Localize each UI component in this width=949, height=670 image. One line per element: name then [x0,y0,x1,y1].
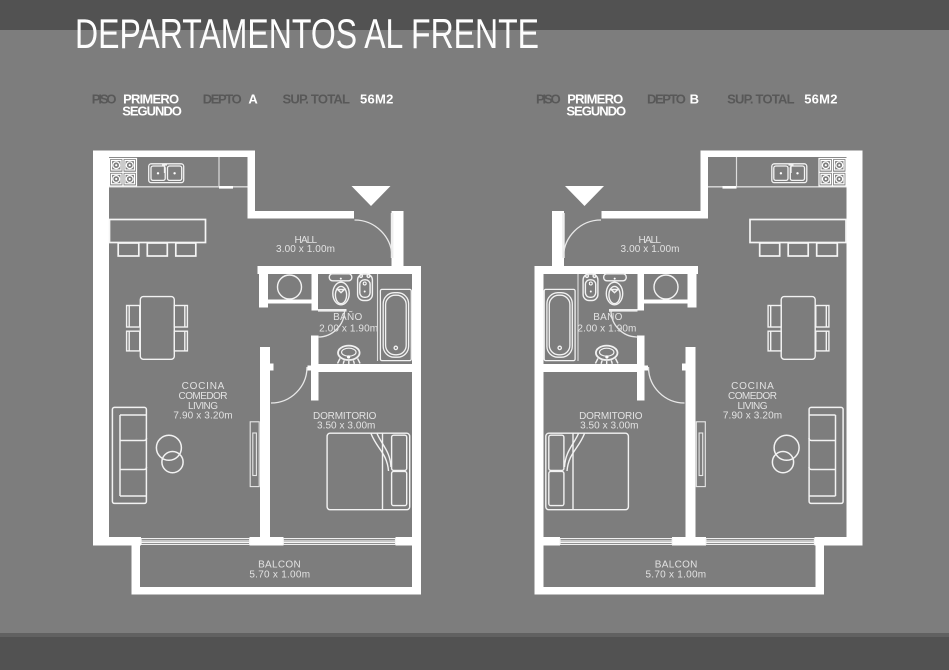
svg-text:56M2: 56M2 [804,92,837,107]
svg-text:DEPTO: DEPTO [203,92,242,107]
svg-text:BAÑO: BAÑO [593,310,622,323]
svg-text:2.00 x 1.90m: 2.00 x 1.90m [577,324,636,335]
svg-text:5.70 x 1.00m: 5.70 x 1.00m [249,569,310,580]
svg-text:PISO: PISO [92,92,117,107]
svg-text:DEPARTAMENTOS AL FRENTE: DEPARTAMENTOS AL FRENTE [75,10,539,57]
svg-text:7.90 x 3.20m: 7.90 x 3.20m [723,411,782,422]
svg-text:3.00 x 1.00m: 3.00 x 1.00m [276,244,335,255]
svg-text:7.90 x 3.20m: 7.90 x 3.20m [173,411,232,422]
svg-text:3.00 x 1.00m: 3.00 x 1.00m [621,244,680,255]
svg-text:56M2: 56M2 [360,92,393,107]
svg-text:5.70 x 1.00m: 5.70 x 1.00m [645,569,706,580]
svg-text:3.50 x 3.00m: 3.50 x 3.00m [317,421,375,432]
svg-text:PISO: PISO [536,92,561,107]
svg-text:DEPTO: DEPTO [647,92,686,107]
svg-text:SUP. TOTAL: SUP. TOTAL [727,92,795,107]
svg-text:SUP. TOTAL: SUP. TOTAL [283,92,351,107]
svg-text:A: A [248,92,258,107]
svg-text:B: B [690,92,699,107]
svg-text:SEGUNDO: SEGUNDO [122,104,182,119]
svg-text:BAÑO: BAÑO [333,310,362,323]
svg-text:2.00 x 1.90m: 2.00 x 1.90m [319,324,378,335]
svg-text:3.50 x 3.00m: 3.50 x 3.00m [580,421,638,432]
svg-text:SEGUNDO: SEGUNDO [566,104,626,119]
